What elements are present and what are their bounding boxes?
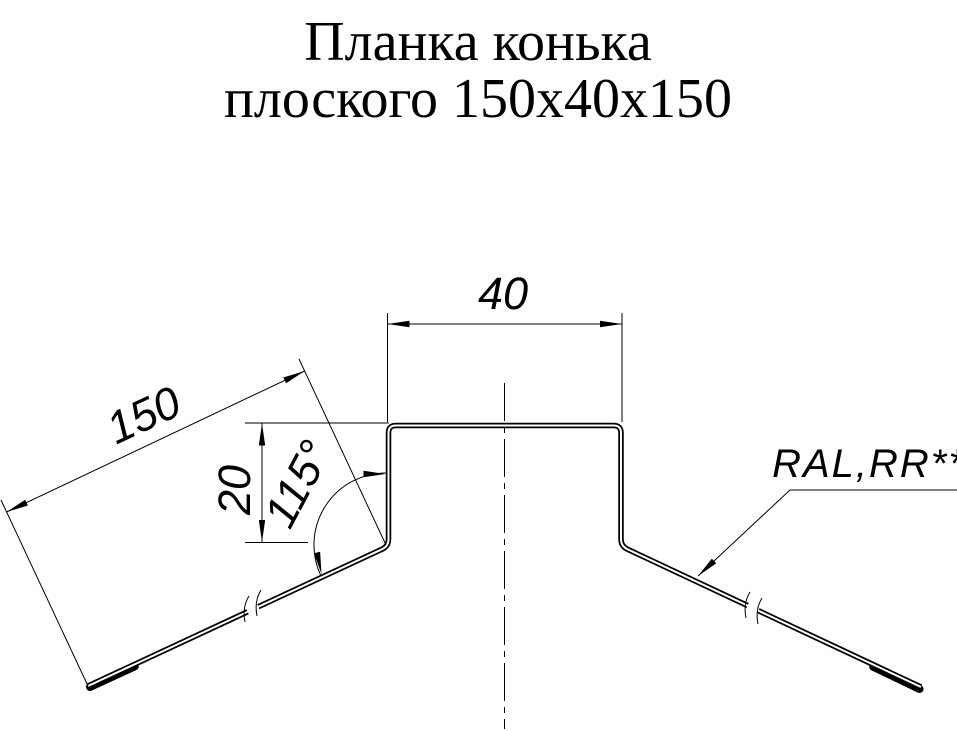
coating-leader: RAL,RR** [698,442,957,576]
dim-value-40: 40 [478,268,528,319]
drawing-title: Планка конька плоского 150x40x150 [224,11,732,130]
dim-arrow-right [600,321,622,327]
break-symbol-right [745,592,762,624]
angle-arc [314,473,386,575]
dim-value-115: 115° [254,432,341,535]
dim-arrow-down [259,520,265,542]
dim-arrow-lower [7,500,28,512]
dim-arrow-up [259,424,265,446]
drawing-canvas: Планка конька плоского 150x40x150 40 [0,0,957,731]
title-line-2: плоского 150x40x150 [224,68,732,130]
hem-right [873,667,919,689]
leader-line [698,490,957,576]
dim-value-150: 150 [99,376,189,454]
dim-arrow-upper [283,371,304,383]
extension-line [1,500,88,686]
technical-drawing: Планка конька плоского 150x40x150 40 [0,0,957,731]
coating-label: RAL,RR** [772,442,957,486]
arc-arrow-upper [364,471,386,478]
arc-arrow-lower [314,552,322,574]
dim-value-20: 20 [209,465,260,516]
leader-arrow [698,559,716,576]
dim-arrow-left [388,321,410,327]
hem-left [90,666,135,687]
title-line-1: Планка конька [304,11,652,73]
